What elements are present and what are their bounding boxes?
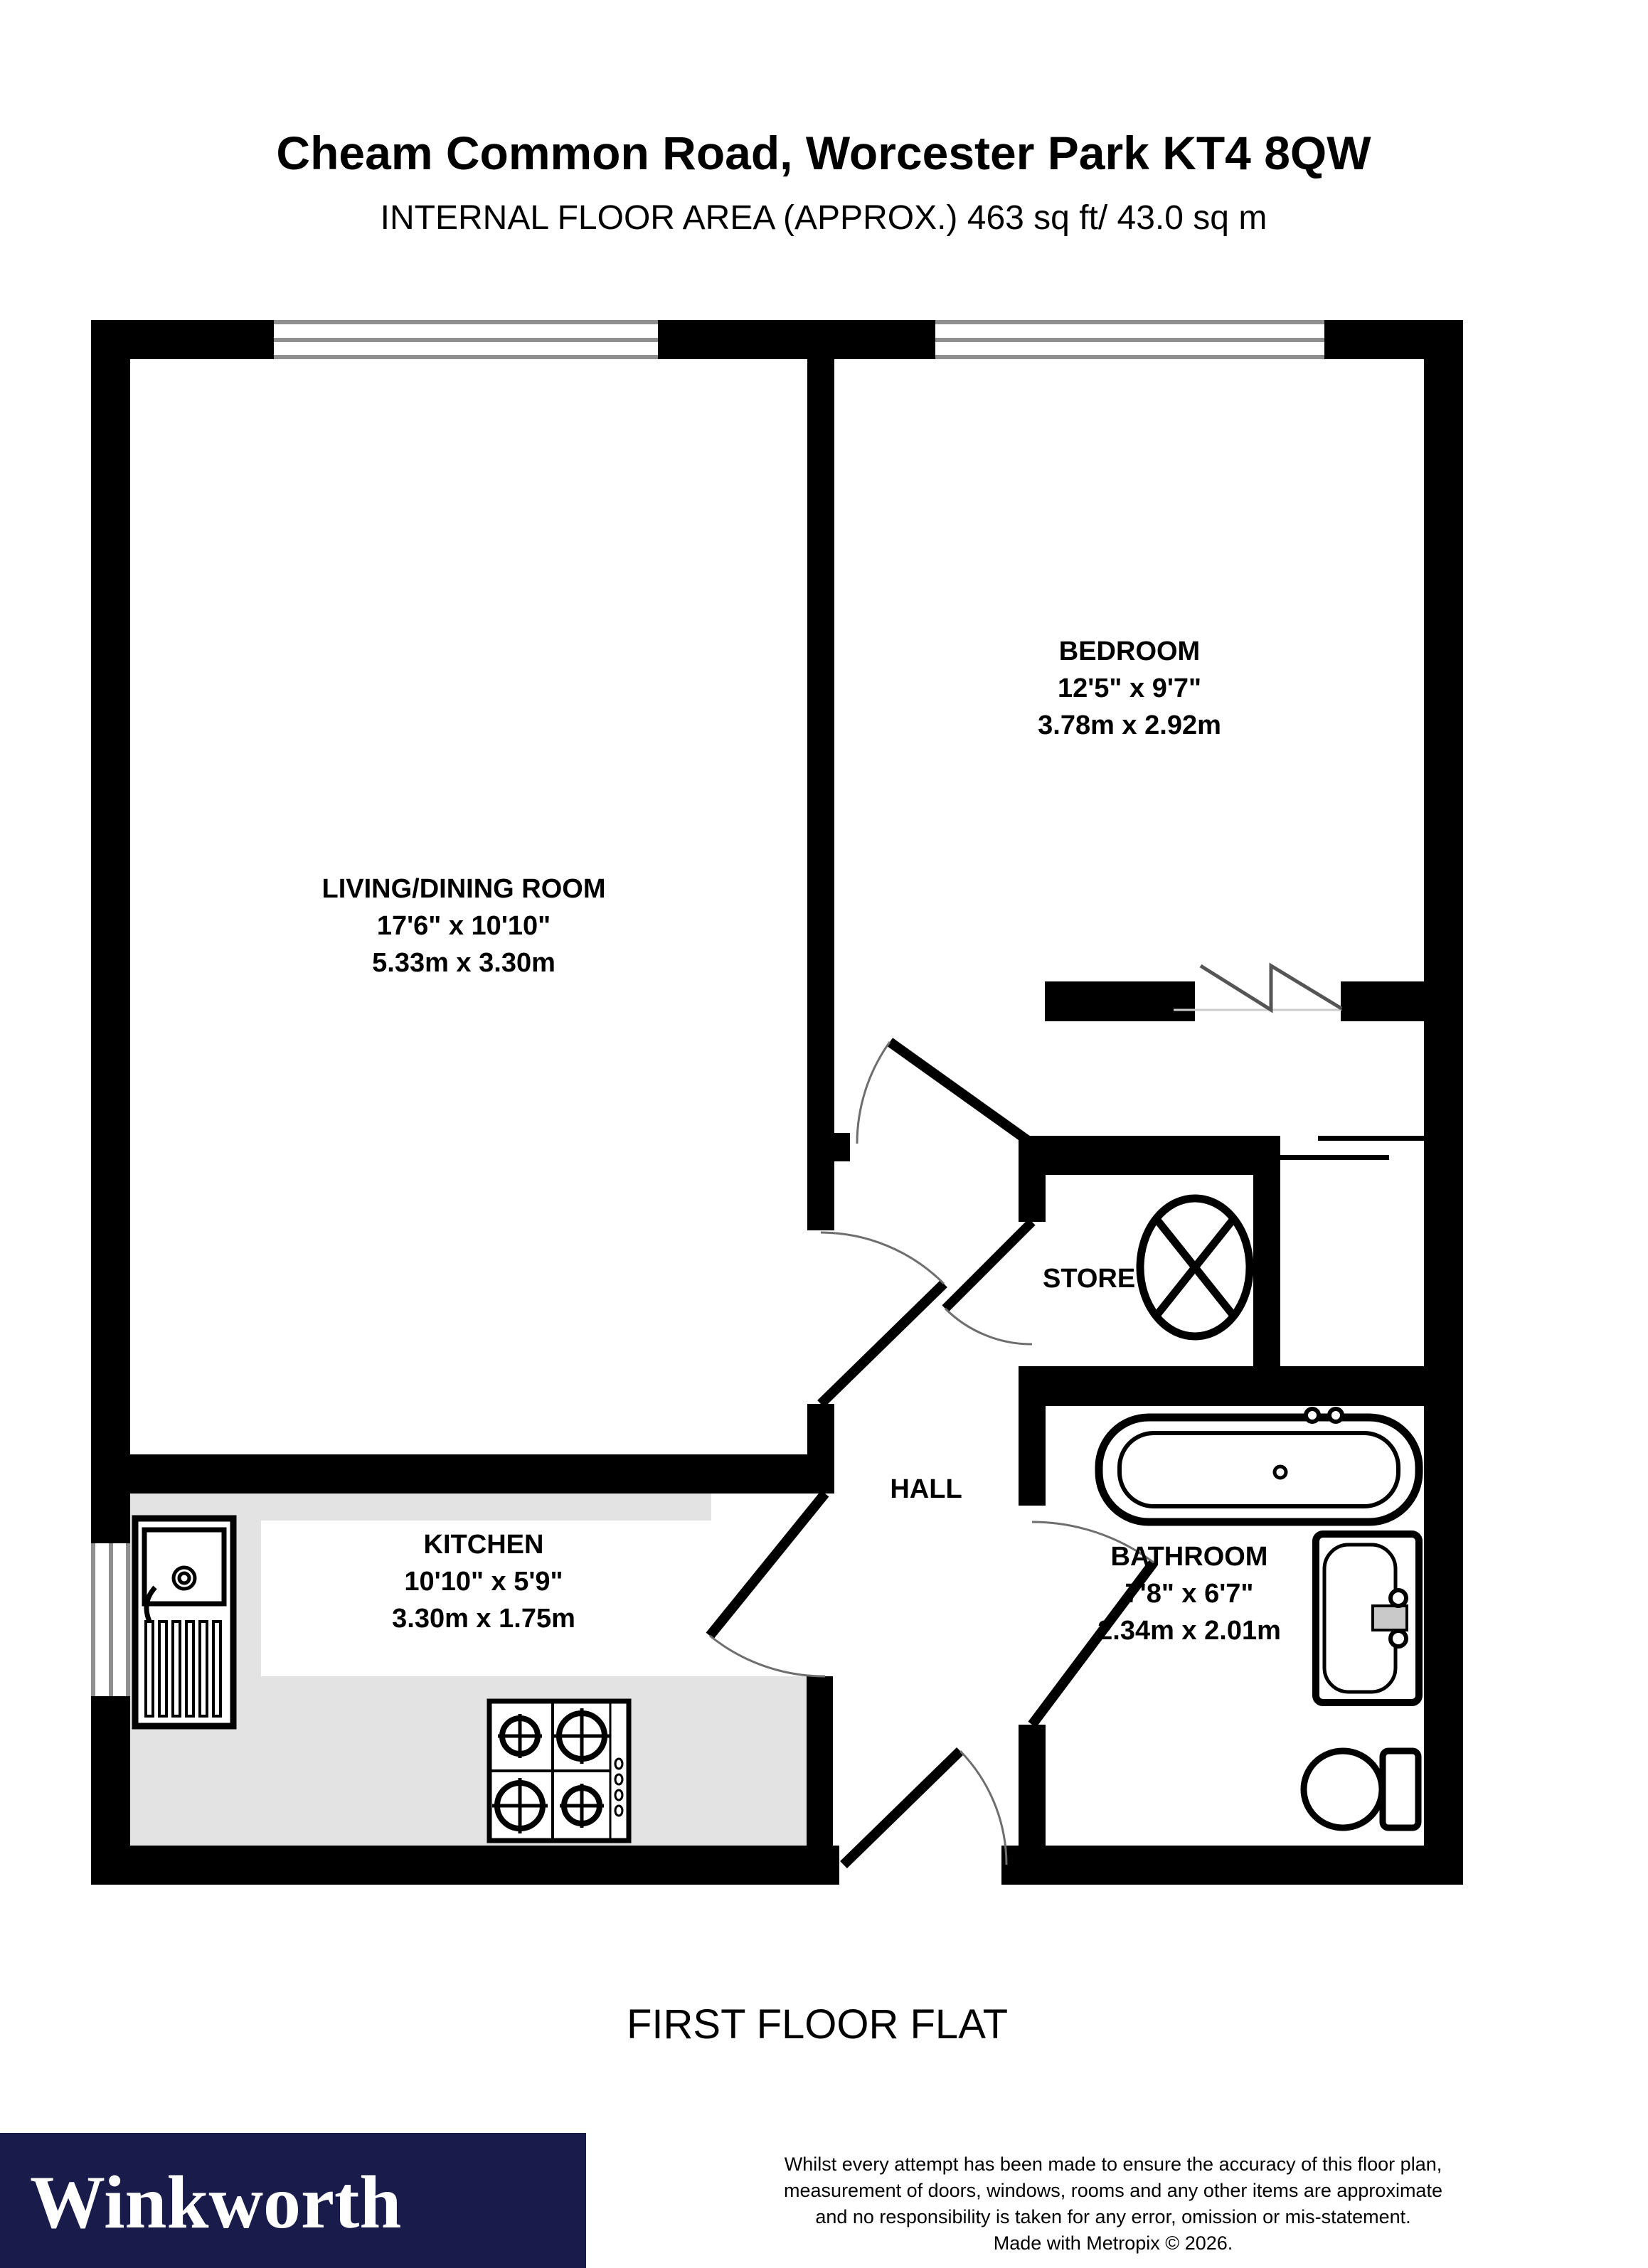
living-window-symbol xyxy=(274,320,658,359)
hall-label: HALL xyxy=(890,1474,962,1504)
store-door-arc xyxy=(945,1309,1032,1344)
living-bedroom-partition xyxy=(807,359,834,1230)
right-wall xyxy=(1424,320,1463,1885)
living-room-dims-imperial: 17'6" x 10'10" xyxy=(377,911,551,941)
floor-caption: FIRST FLOOR FLAT xyxy=(627,2001,1008,2048)
kitchen-dims-metric: 3.30m x 1.75m xyxy=(392,1604,575,1634)
kitchen-door-leaf xyxy=(710,1494,825,1636)
living-room-door xyxy=(821,1233,944,1404)
disclaimer-line-3: and no responsibility is taken for any e… xyxy=(815,2206,1410,2227)
store-right-wall xyxy=(1253,1175,1280,1366)
nook-line-lower xyxy=(1280,1155,1389,1160)
bedroom-door-arc xyxy=(857,1042,890,1144)
hob-icon xyxy=(489,1701,629,1841)
store-top-wall xyxy=(1046,1136,1280,1175)
front-door-leaf xyxy=(844,1751,960,1865)
bath-icon xyxy=(1099,1409,1419,1522)
living-door-leaf xyxy=(821,1284,944,1404)
footer: Winkworth Whilst every attempt has been … xyxy=(0,2133,1442,2268)
bedroom-door-leaf xyxy=(890,1042,1032,1144)
disclaimer-line-1: Whilst every attempt has been made to en… xyxy=(785,2153,1442,2175)
brand-logo: Winkworth xyxy=(30,2161,401,2244)
bathroom-dims-metric: 2.34m x 2.01m xyxy=(1097,1616,1281,1646)
kitchen-door-arc xyxy=(710,1636,825,1676)
bathroom-label: BATHROOM 7'8" x 6'7" 2.34m x 2.01m xyxy=(1097,1542,1281,1646)
living-room-label: LIVING/DINING ROOM 17'6" x 10'10" 5.33m … xyxy=(322,874,606,978)
bedroom-bottom-wall-left xyxy=(1045,981,1195,1021)
kitchen-right-wall xyxy=(807,1676,833,1846)
living-room-dims-metric: 5.33m x 3.30m xyxy=(372,948,555,978)
top-wall-mid xyxy=(658,320,935,359)
opening-zigzag-symbol xyxy=(1174,966,1341,1010)
kitchen-dims-imperial: 10'10" x 5'9" xyxy=(404,1567,563,1597)
bathroom-dims-imperial: 7'8" x 6'7" xyxy=(1125,1579,1254,1609)
page-subtitle: INTERNAL FLOOR AREA (APPROX.) 463 sq ft/… xyxy=(381,199,1267,237)
walls xyxy=(91,320,1463,1885)
floorplan-page: Cheam Common Road, Worcester Park KT4 8Q… xyxy=(0,0,1648,2268)
bottom-wall-left xyxy=(91,1846,839,1885)
bedroom-label: BEDROOM 12'5" x 9'7" 3.78m x 2.92m xyxy=(1038,637,1221,740)
bedroom-dims-imperial: 12'5" x 9'7" xyxy=(1058,674,1201,703)
kitchen-divider-wall xyxy=(130,1454,834,1494)
disclaimer-line-4: Made with Metropix © 2026. xyxy=(994,2232,1233,2254)
living-door-arc xyxy=(821,1233,944,1284)
bedroom-dims-metric: 3.78m x 2.92m xyxy=(1038,710,1221,740)
bedroom-door xyxy=(857,1042,1032,1144)
front-door xyxy=(844,1751,1006,1865)
kitchen-door xyxy=(710,1494,825,1676)
left-wall-upper xyxy=(91,320,130,1543)
partition-nub xyxy=(834,1133,850,1161)
living-room-name: LIVING/DINING ROOM xyxy=(322,874,606,904)
floorplan-canvas: Cheam Common Road, Worcester Park KT4 8Q… xyxy=(0,0,1648,2268)
store-door xyxy=(945,1222,1032,1344)
nook-line-upper xyxy=(1318,1136,1424,1141)
store-bottom-wall xyxy=(1019,1366,1424,1406)
store-left-wall xyxy=(1019,1136,1046,1222)
bathroom-door-lower-stub xyxy=(1019,1725,1046,1846)
bottom-wall-right xyxy=(1001,1846,1463,1885)
kitchen-sink-icon xyxy=(135,1518,233,1726)
kitchen-label: KITCHEN 10'10" x 5'9" 3.30m x 1.75m xyxy=(392,1530,575,1634)
toilet-icon xyxy=(1304,1751,1418,1828)
disclaimer-line-2: measurement of doors, windows, rooms and… xyxy=(784,2180,1442,2201)
front-door-arc xyxy=(960,1751,1006,1865)
living-wall-lower-stub xyxy=(807,1404,834,1454)
store-label: STORE xyxy=(1043,1264,1135,1294)
store-door-leaf xyxy=(945,1222,1032,1309)
bedroom-window-symbol xyxy=(935,320,1324,359)
kitchen-name: KITCHEN xyxy=(424,1530,544,1560)
bedroom-bottom-wall-right xyxy=(1341,981,1424,1021)
bedroom-name: BEDROOM xyxy=(1059,637,1200,666)
basin-icon xyxy=(1316,1534,1419,1703)
bathroom-name: BATHROOM xyxy=(1111,1542,1268,1572)
disclaimer: Whilst every attempt has been made to en… xyxy=(784,2153,1442,2254)
page-title: Cheam Common Road, Worcester Park KT4 8Q… xyxy=(276,127,1371,179)
hall-right-wall xyxy=(1019,1406,1046,1506)
kitchen-window-symbol xyxy=(91,1543,130,1696)
water-cylinder-icon xyxy=(1140,1198,1250,1336)
